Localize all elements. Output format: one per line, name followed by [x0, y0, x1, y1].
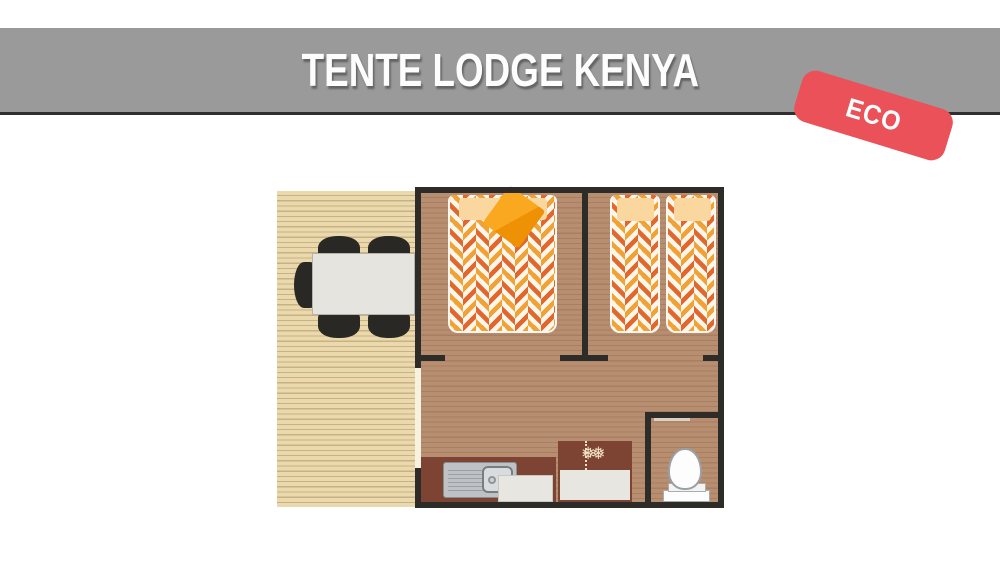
fridge-cabinet: ❅❅: [558, 441, 632, 502]
wall-left-lower: [415, 468, 421, 508]
dining-chair: [318, 312, 360, 338]
wall-right: [718, 187, 724, 508]
bed-pillow: [617, 198, 654, 221]
kitchen-appliance: [498, 475, 553, 502]
snowflake-icon: ❅❅: [581, 445, 602, 462]
screenshot-root: TENTE LODGE KENYA ECO: [0, 0, 1000, 563]
bathroom-door: [654, 418, 690, 421]
wall-bedroom-divider: [582, 193, 588, 361]
wall-bedroom1-stub: [421, 355, 445, 361]
single-bed-left: [610, 195, 660, 333]
page-title: TENTE LODGE KENYA: [301, 43, 698, 97]
wall-bottom: [415, 502, 724, 508]
bed-pillow: [674, 198, 711, 221]
wall-left-upper: [415, 187, 421, 368]
eco-badge-label: ECO: [842, 92, 905, 138]
deck-door-opening: [415, 368, 421, 468]
wall-bedroom2-stub: [703, 355, 718, 361]
single-bed-right: [666, 195, 716, 333]
fridge-front-panel: [560, 470, 630, 500]
wall-top: [415, 187, 724, 193]
floor-plan: ❅❅: [277, 187, 724, 508]
toilet-bowl: [668, 448, 702, 490]
dining-table: [312, 253, 415, 315]
sink-drain: [488, 476, 496, 484]
dining-chair: [368, 312, 410, 338]
wall-bathroom-left: [645, 412, 651, 502]
